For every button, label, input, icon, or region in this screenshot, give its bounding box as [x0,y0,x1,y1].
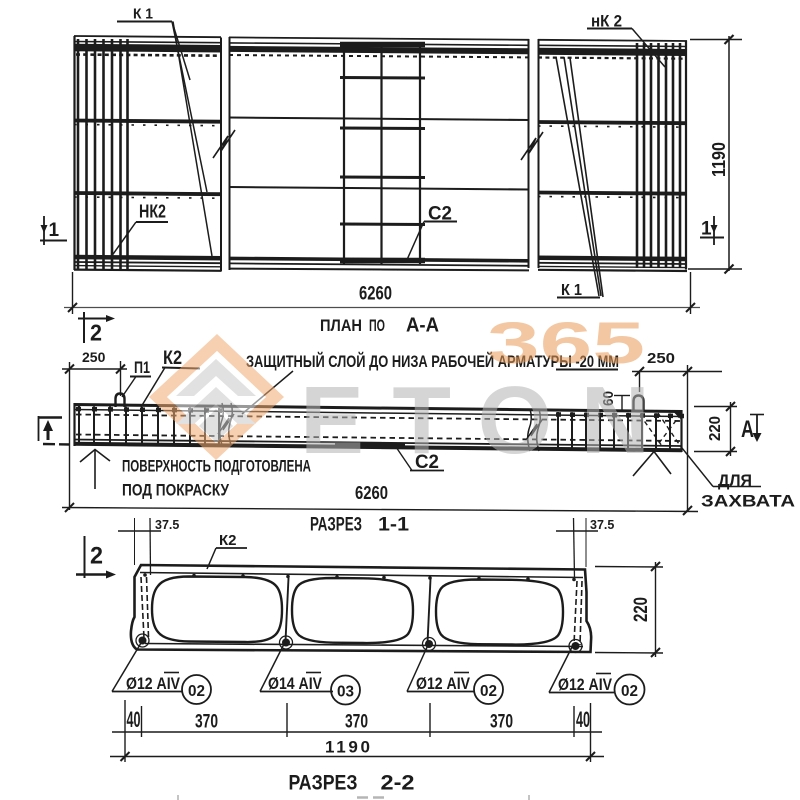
svg-text:1190: 1190 [709,142,729,177]
svg-text:К 1: К 1 [133,6,153,23]
svg-text:40: 40 [127,707,141,732]
svg-text:К 1: К 1 [561,282,582,299]
svg-text:220: 220 [631,597,652,622]
svg-text:02: 02 [621,683,638,700]
svg-text:03: 03 [337,684,354,701]
svg-text:Ø14 АIV: Ø14 АIV [268,675,322,693]
svg-text:ПОД ПОКРАСКУ: ПОД ПОКРАСКУ [122,482,230,500]
svg-text:2-2: 2-2 [381,771,415,795]
svg-text:1190: 1190 [325,738,370,757]
svg-text:ЗАХВАТА: ЗАХВАТА [701,493,795,511]
svg-text:1: 1 [701,219,712,240]
svg-text:02: 02 [188,683,205,700]
svg-text:НК2: НК2 [139,202,166,222]
svg-text:6260: 6260 [359,284,392,305]
svg-text:К2: К2 [163,348,182,369]
svg-text:40: 40 [576,707,590,732]
svg-text:РАЗРЕЗ: РАЗРЕЗ [310,515,362,536]
svg-text:Ø12 АIV: Ø12 АIV [416,675,470,693]
svg-text:Ø12 АIV: Ø12 АIV [558,676,612,694]
svg-text:1-1: 1-1 [378,515,409,536]
svg-text:370: 370 [195,712,218,733]
svg-text:А: А [741,416,754,443]
svg-text:РАЗРЕЗ: РАЗРЕЗ [289,771,358,795]
svg-text:6260: 6260 [355,483,388,503]
svg-text:1: 1 [49,220,60,241]
svg-text:ПОВЕРХНОСТЬ ПОДГОТОВЛЕНА: ПОВЕРХНОСТЬ ПОДГОТОВЛЕНА [122,458,311,476]
svg-text:250: 250 [82,349,106,365]
svg-text:Ø12 АIV: Ø12 АIV [126,675,180,693]
svg-text:37.5: 37.5 [590,518,614,532]
svg-text:2: 2 [90,320,102,346]
svg-text:ДЛЯ: ДЛЯ [718,472,752,490]
svg-text:02: 02 [480,683,497,700]
svg-text:37.5: 37.5 [155,518,179,532]
svg-text:220: 220 [707,416,724,441]
svg-text:А-А: А-А [406,315,439,337]
svg-text:250: 250 [647,350,675,367]
svg-text:ПО: ПО [369,316,385,335]
svg-text:П1: П1 [134,358,150,377]
svg-text:370: 370 [345,712,368,733]
svg-text:К2: К2 [219,532,237,549]
svg-text:ПЛАН: ПЛАН [320,316,362,335]
svg-text:370: 370 [490,712,513,733]
svg-text:2: 2 [90,543,103,570]
